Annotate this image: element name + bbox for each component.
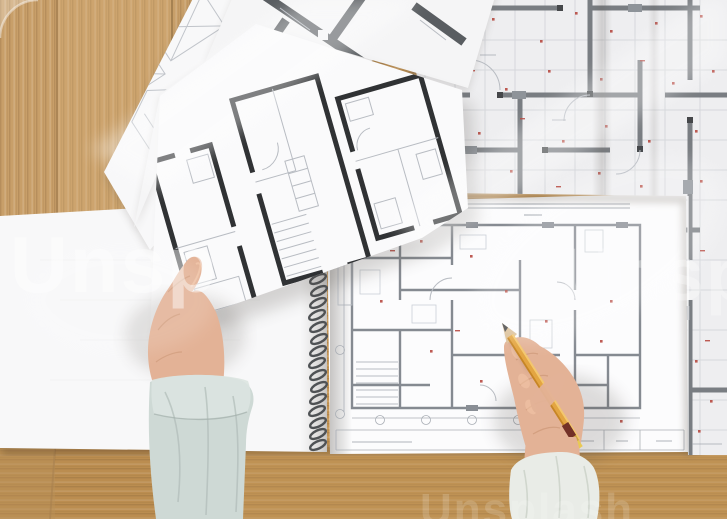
architect-desk-photo: Unsp Unspl Unsplash <box>0 0 727 519</box>
desk-photo-canvas: Unsp Unspl Unsplash <box>0 0 727 519</box>
photo-tone-overlay <box>0 0 727 519</box>
